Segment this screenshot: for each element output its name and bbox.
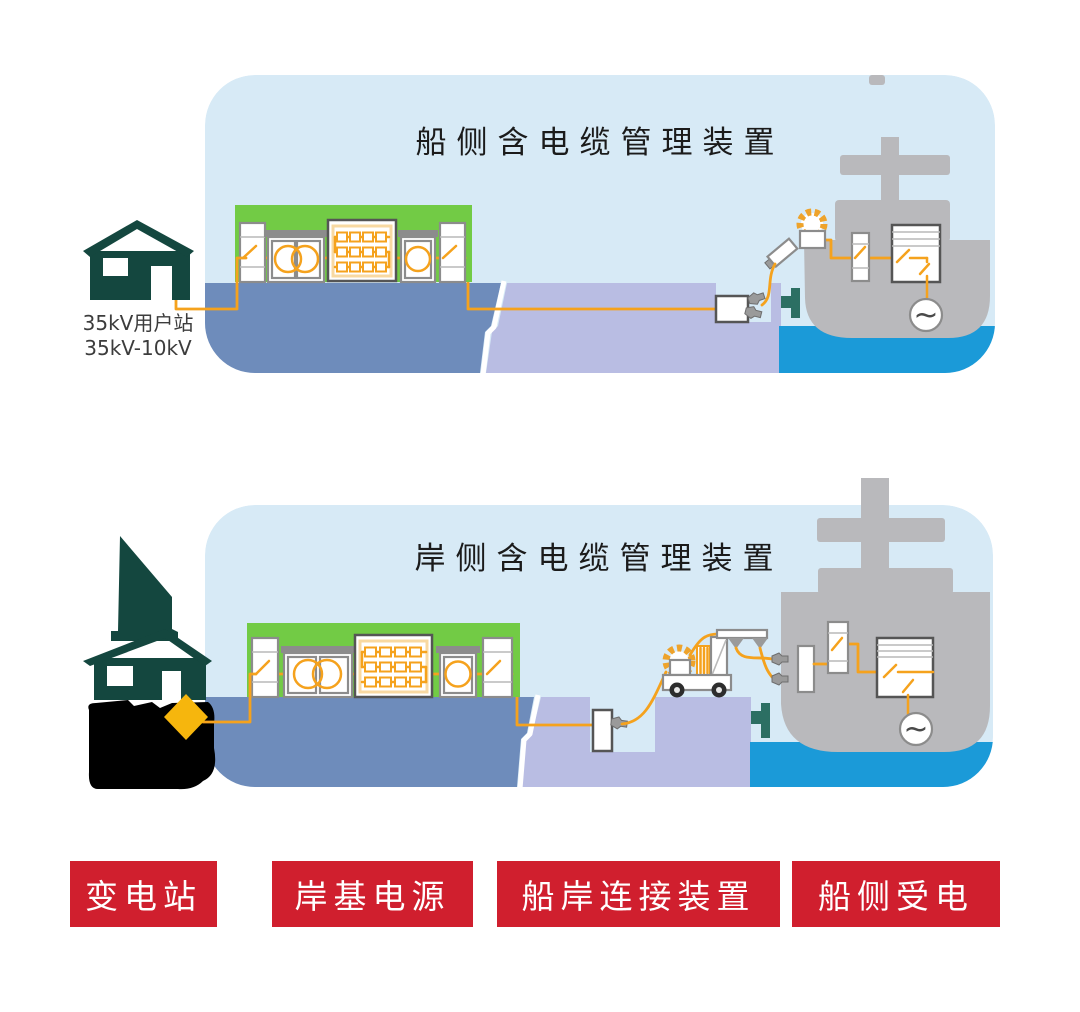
shore-power-station: [247, 623, 520, 697]
shore-power-infographic: ~: [0, 0, 1080, 1012]
ship-inlet-panel: [798, 646, 814, 692]
legend-connection-device: 船岸连接装置: [497, 861, 780, 927]
door: [151, 266, 172, 300]
transformer-icon: [281, 646, 355, 697]
switch-cabinet-icon: [852, 233, 869, 281]
window: [107, 666, 133, 686]
window: [103, 258, 128, 276]
legend-substation: 变电站: [70, 861, 217, 927]
switch-cabinet-icon: [483, 638, 512, 697]
switch-cabinet-icon: [240, 223, 265, 282]
reel-housing: [670, 660, 690, 675]
door: [162, 671, 181, 700]
switch-cabinet-icon: [828, 622, 848, 673]
mast-tip: [869, 75, 885, 85]
substation-label: 35kV用户站 35kV-10kV: [52, 311, 224, 361]
panel1-title: 船侧含电缆管理装置: [205, 117, 995, 162]
converter-panel-icon: [355, 635, 432, 697]
transformer-icon: [398, 230, 438, 282]
generator-icon: ~: [910, 298, 942, 333]
switch-cabinet-icon: [440, 223, 465, 282]
substation-label-line2: 35kV-10kV: [52, 336, 224, 361]
svg-text:~: ~: [913, 298, 938, 333]
converter-panel-icon: [328, 220, 396, 281]
shore-platform: [205, 283, 501, 373]
wheel-icon: [712, 683, 727, 698]
shore-platform: [205, 697, 534, 787]
substation-label-line1: 35kV用户站: [52, 311, 224, 336]
legend-shore-power: 岸基电源: [272, 861, 473, 927]
substation-plant-icon: [83, 536, 212, 700]
generator-icon: ~: [900, 712, 932, 747]
crane-boom: [717, 630, 767, 638]
legend-ship-reception: 船侧受电: [792, 861, 1000, 927]
shore-power-station: [235, 205, 472, 282]
panel2-title: 岸侧含电缆管理装置: [205, 533, 993, 578]
tower: [111, 536, 178, 641]
transformer-icon: [264, 230, 328, 282]
wheel-icon: [670, 683, 685, 698]
switch-cabinet-icon: [252, 638, 278, 697]
cable-reel-icon: [800, 212, 825, 248]
cable-guide: [697, 646, 710, 675]
svg-text:~: ~: [903, 712, 928, 747]
crane-mast: [711, 637, 727, 677]
transformer-icon: [436, 646, 480, 697]
